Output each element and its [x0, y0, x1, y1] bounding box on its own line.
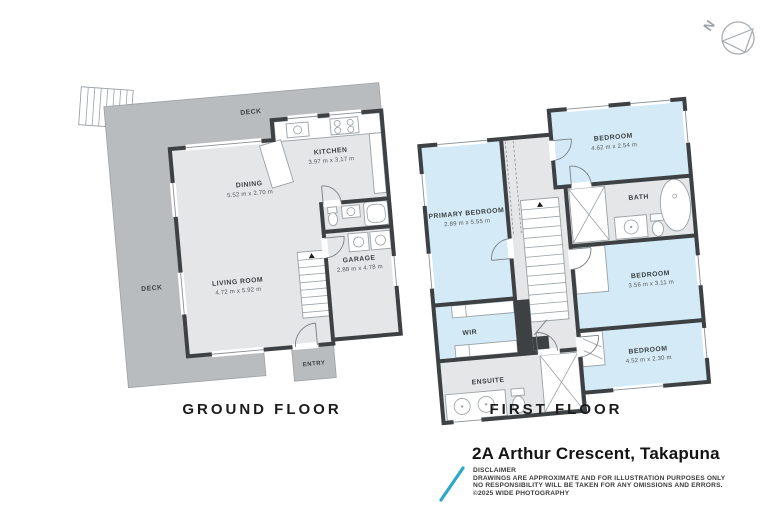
disclaimer-title: DISCLAIMER — [473, 467, 725, 475]
first-floor-title: FIRST FLOOR — [431, 401, 681, 418]
disclaimer-line1: DRAWINGS ARE APPROXIMATE AND FOR ILLUSTR… — [473, 475, 725, 483]
ground-floor-title: GROUND FLOOR — [137, 401, 387, 418]
logo-slash — [441, 468, 463, 500]
disclaimer-block: DISCLAIMER DRAWINGS ARE APPROXIMATE AND … — [473, 467, 725, 497]
floorplan-page: N — [0, 0, 768, 512]
photographer-logo — [436, 464, 468, 504]
property-address: 2A Arthur Crescent, Takapuna — [472, 444, 720, 464]
disclaimer-line3: ©2025 WIDE PHOTOGRAPHY — [473, 490, 725, 498]
first-floor-plan: PRIMARY BEDROOM 2.89 m x 5.55 m BEDROOM … — [412, 82, 716, 432]
ground-floor-plan: DECK DECK KITCHEN 3.97 m x 3.17 m DINING… — [85, 38, 421, 394]
disclaimer-line2: NO RESPONSIBILITY WILL BE TAKEN FOR ANY … — [473, 482, 725, 490]
compass-icon: N — [696, 10, 760, 66]
compass-north-label: N — [700, 17, 718, 33]
wall-block-2 — [532, 336, 549, 351]
wir-label: WIR — [462, 329, 477, 337]
